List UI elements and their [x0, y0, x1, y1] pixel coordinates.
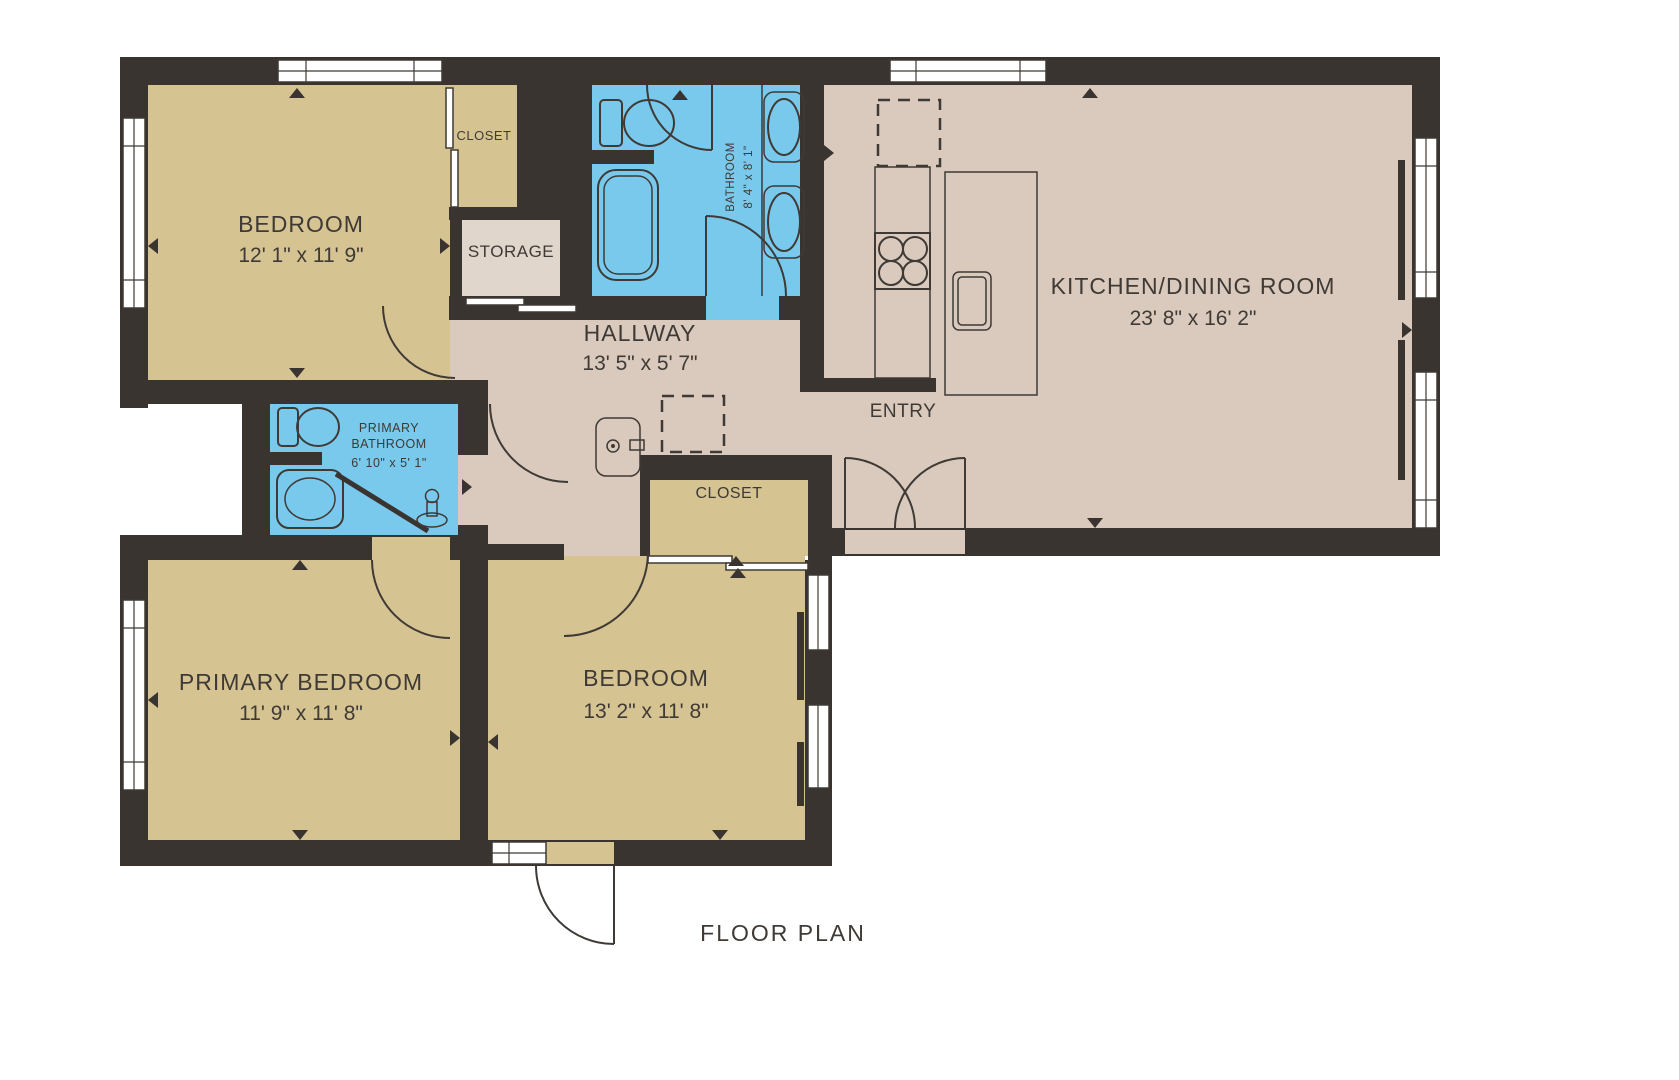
page-title: FLOOR PLAN — [700, 920, 866, 946]
wall-bathroom-left — [560, 85, 592, 296]
room-dims-primary-bedroom: 11' 9" x 11' 8" — [239, 702, 363, 725]
room-label-bedroom-1: BEDROOM — [238, 211, 364, 237]
wall-bedroom2-top-stub — [488, 544, 564, 560]
wall-bedroom1-bottom — [120, 380, 488, 404]
room-label-storage: STORAGE — [468, 242, 554, 261]
closet-top-floor — [452, 85, 517, 207]
wall-primary-bath-stub — [270, 452, 322, 465]
wall-closet-right-block — [517, 85, 560, 220]
room-label-bathroom: BATHROOM — [725, 142, 737, 212]
storage-slider-b — [518, 305, 576, 312]
closet-top-slider-a — [446, 88, 453, 148]
closet-top-slider-b — [451, 150, 458, 207]
primary-bedroom-door-gap-overlay — [372, 537, 450, 560]
sliding-panel-right-upper — [1398, 160, 1405, 300]
wall-bedroom1-right-thin — [450, 207, 462, 306]
room-label-primary-bathroom-line1: PRIMARY — [359, 421, 419, 435]
room-label-bedroom-2: BEDROOM — [583, 665, 709, 691]
wall-closet-mid-left — [640, 480, 650, 556]
window-bedroom-2-right-lower — [808, 705, 829, 788]
floor-plan-page: BEDROOM 12' 1" x 11' 9" CLOSET STORAGE B… — [0, 0, 1679, 1080]
room-label-primary-bathroom-line2: BATHROOM — [351, 437, 426, 451]
window-kitchen-right-lower — [1415, 372, 1437, 528]
room-label-entry: ENTRY — [870, 401, 937, 422]
bathroom-bottom-door-gap-overlay — [706, 296, 779, 320]
bedroom-2-exterior-door-sill — [546, 842, 614, 864]
sliding-panel-bedroom2-upper — [797, 612, 804, 700]
room-dims-hallway: 13' 5" x 5' 7" — [582, 352, 697, 375]
window-kitchen-right-upper — [1415, 138, 1437, 298]
window-bedroom-2-bottom — [492, 842, 546, 864]
wall-bathroom-stub — [592, 150, 654, 164]
hall-entry-strip-floor — [640, 390, 800, 455]
room-dims-kitchen-dining: 23' 8" x 16' 2" — [1130, 307, 1257, 330]
room-dims-bedroom-1: 12' 1" x 11' 9" — [238, 244, 363, 267]
wall-closet-mid-top — [640, 455, 832, 480]
room-label-primary-bedroom: PRIMARY BEDROOM — [179, 669, 423, 695]
wall-between-bedrooms — [460, 560, 488, 840]
bedroom-2-exterior-door — [536, 866, 614, 944]
sliding-panel-bedroom2-lower — [797, 742, 804, 806]
kitchen-dining-floor — [824, 85, 1412, 528]
primary-bedroom-floor — [148, 560, 460, 840]
wall-primary-bath-left — [242, 404, 270, 535]
closet-mid-slider-a — [648, 556, 732, 563]
storage-slider-a — [466, 298, 524, 305]
window-bedroom-1-top — [278, 60, 442, 82]
wall-closet-bottom — [449, 207, 560, 220]
room-dims-bedroom-2: 13' 2" x 11' 8" — [583, 700, 708, 723]
window-kitchen-top — [890, 60, 1046, 82]
window-bedroom-1-left — [123, 118, 145, 308]
room-label-closet-mid: CLOSET — [695, 485, 762, 502]
floor-plan-drawing: BEDROOM 12' 1" x 11' 9" CLOSET STORAGE B… — [0, 0, 1679, 1080]
room-label-closet-top: CLOSET — [456, 128, 511, 143]
wall-counter-stub — [800, 378, 936, 392]
window-primary-bedroom-left — [123, 600, 145, 790]
room-dims-primary-bathroom: 6' 10" x 5' 1" — [351, 456, 427, 470]
room-label-hallway: HALLWAY — [584, 320, 697, 346]
room-label-kitchen-dining: KITCHEN/DINING ROOM — [1051, 273, 1336, 299]
window-bedroom-2-right-upper — [808, 575, 829, 650]
wall-bottom — [120, 840, 832, 866]
room-dims-bathroom: 8' 4" x 8' 1" — [743, 145, 755, 208]
bedroom-2-floor — [488, 556, 805, 840]
entry-door-sill — [845, 530, 965, 554]
sliding-panel-right-lower — [1398, 340, 1405, 480]
wall-primary-bath-right-a — [458, 404, 488, 455]
